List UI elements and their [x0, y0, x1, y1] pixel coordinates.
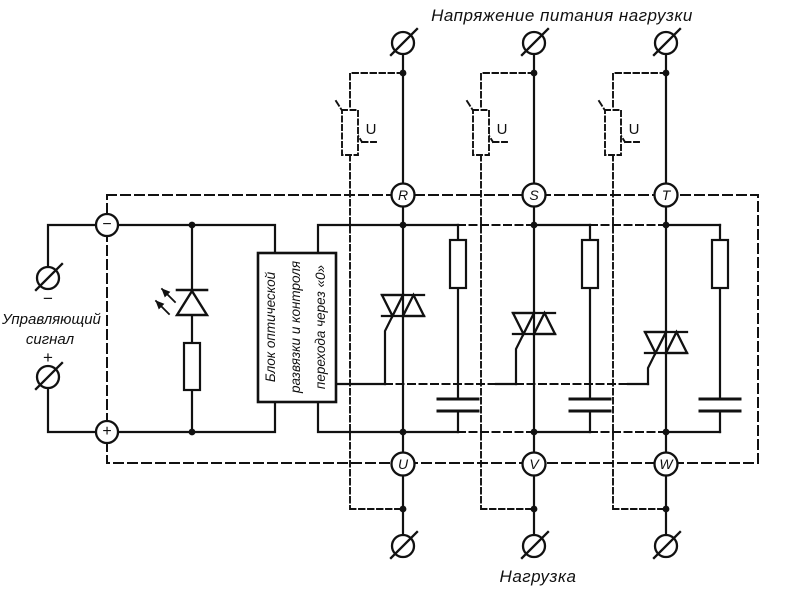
snubber-capacitor-s [570, 399, 610, 411]
pin-label-u: U [391, 454, 415, 474]
block-caption-line1: Блок оптической [258, 247, 283, 407]
varistor-s [473, 110, 489, 155]
terminal-top-r [391, 29, 417, 55]
control-signal-label-line1: Управляющий [2, 311, 98, 328]
control-plus-sign: + [38, 348, 58, 368]
terminal-bottom-v [522, 532, 548, 558]
optocoupler-block-caption: Блок оптической развязки и контроля пере… [258, 247, 336, 407]
control-wiring [48, 225, 275, 432]
pin-label-s: S [522, 185, 546, 205]
pin-label-v: V [522, 454, 546, 474]
schematic-page: Напряжение питания нагрузки Нагрузка Упр… [0, 0, 800, 611]
terminal-bottom-u [391, 532, 417, 558]
pin-label-r: R [391, 185, 415, 205]
pin-label-minus: − [95, 215, 119, 235]
control-minus-sign: − [38, 289, 58, 309]
circuit-diagram [0, 0, 800, 611]
screw-terminals [36, 29, 680, 558]
terminal-top-s [522, 29, 548, 55]
led-series-resistor [184, 343, 200, 390]
pin-label-w: W [654, 454, 678, 474]
block-caption-line2: развязки и контроля [283, 247, 308, 407]
varistor-label-r: U [362, 120, 380, 140]
snubber-resistor-s [582, 240, 598, 288]
gate-wires [336, 316, 656, 384]
supply-voltage-title: Напряжение питания нагрузки [412, 6, 712, 26]
relay-enclosure-outline [107, 195, 758, 463]
terminal-bottom-w [654, 532, 680, 558]
pin-label-t: T [654, 185, 678, 205]
varistor-label-s: U [493, 120, 511, 140]
varistor-r [342, 110, 358, 155]
terminal-control-minus [36, 264, 62, 290]
control-signal-label-line2: сигнал [2, 331, 98, 348]
pin-label-plus: + [95, 422, 119, 442]
led [156, 289, 207, 315]
load-label: Нагрузка [478, 567, 598, 587]
varistor-label-t: U [625, 120, 643, 140]
snubber-resistor-t [712, 240, 728, 288]
snubber-resistor-r [450, 240, 466, 288]
varistor-t [605, 110, 621, 155]
snubber-capacitor-t [700, 399, 740, 411]
terminal-top-t [654, 29, 680, 55]
block-caption-line3: перехода через «0» [308, 247, 333, 407]
snubber-capacitor-r [438, 399, 478, 411]
block-output-wiring [318, 225, 720, 432]
